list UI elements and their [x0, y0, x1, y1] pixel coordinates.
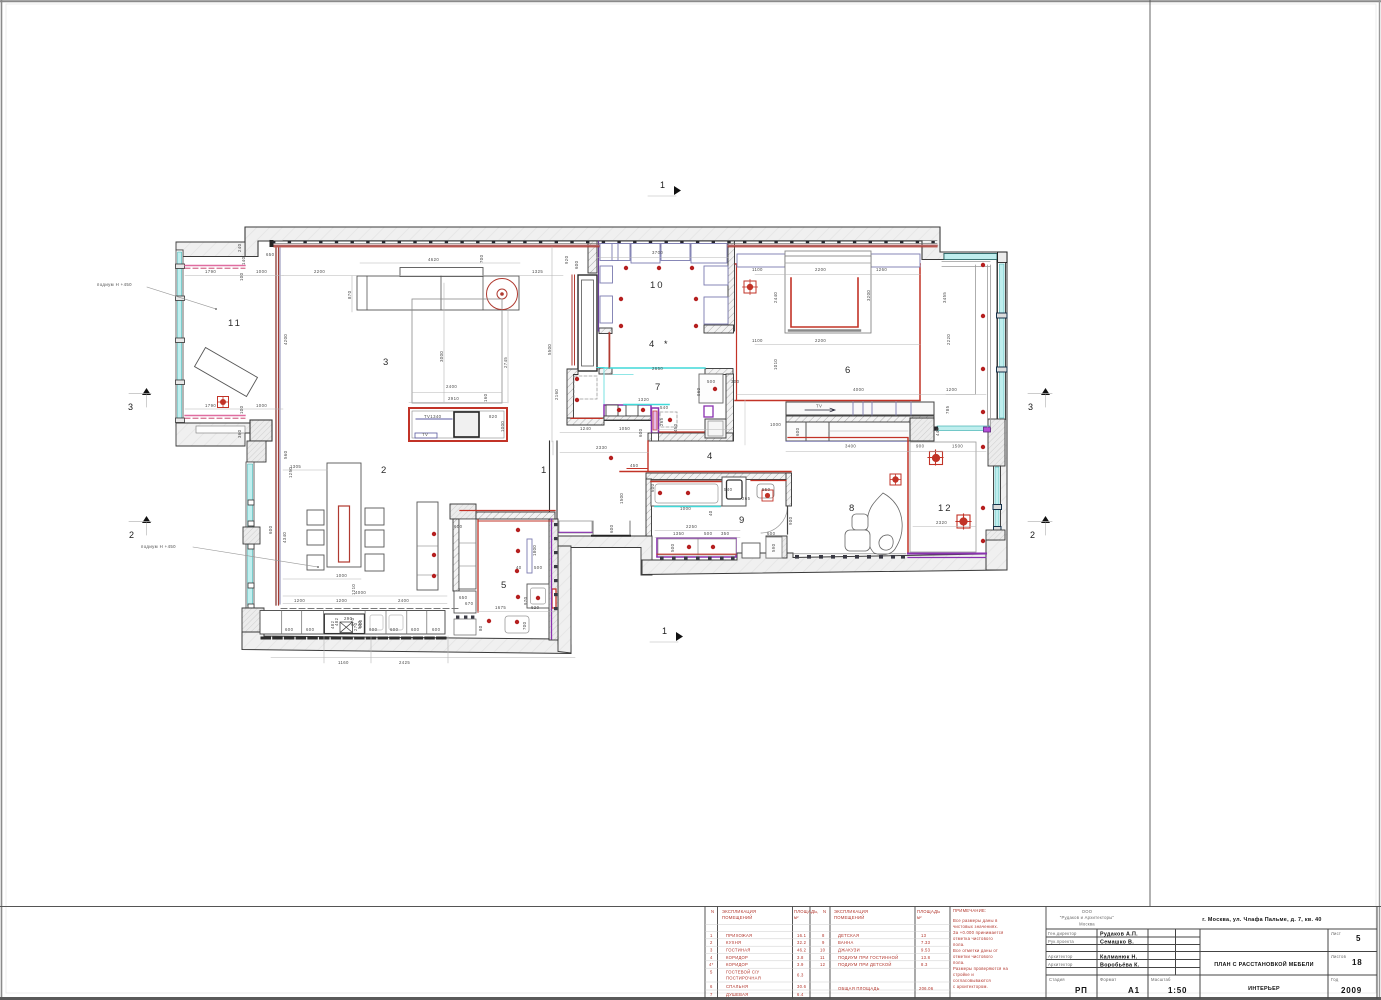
svg-text:1: 1: [662, 626, 667, 636]
svg-text:Ген.директор: Ген.директор: [1048, 931, 1077, 936]
svg-text:4620: 4620: [428, 257, 439, 262]
svg-text:ГОСТИНАЯ: ГОСТИНАЯ: [726, 948, 751, 953]
svg-text:600: 600: [609, 524, 614, 533]
svg-text:140: 140: [241, 256, 246, 265]
svg-text:3400: 3400: [845, 444, 856, 449]
svg-text:"Рудаков и Архитекторы": "Рудаков и Архитекторы": [1060, 915, 1115, 920]
svg-text:4: 4: [710, 955, 713, 960]
svg-text:TV: TV: [816, 404, 822, 409]
svg-text:Год: Год: [1331, 977, 1339, 982]
svg-text:100: 100: [239, 272, 244, 281]
svg-text:450: 450: [630, 463, 639, 468]
svg-text:Архитектор: Архитектор: [1048, 962, 1073, 967]
svg-text:РП: РП: [1075, 986, 1088, 995]
svg-text:500: 500: [357, 620, 362, 629]
svg-text:600: 600: [268, 525, 273, 534]
svg-text:600: 600: [411, 627, 420, 632]
svg-text:9.53: 9.53: [921, 948, 931, 953]
svg-text:Все размеры даны в: Все размеры даны в: [953, 918, 998, 923]
svg-text:1000: 1000: [680, 506, 691, 511]
svg-text:600: 600: [306, 627, 315, 632]
svg-text:10: 10: [650, 280, 665, 291]
svg-text:1000: 1000: [500, 421, 505, 432]
svg-text:482: 482: [334, 617, 339, 626]
svg-text:360: 360: [237, 429, 242, 438]
svg-text:4200: 4200: [283, 334, 288, 345]
svg-text:1050: 1050: [619, 426, 630, 431]
svg-text:Масштаб: Масштаб: [1151, 977, 1171, 982]
svg-text:ЭКСПЛИКАЦИЯ: ЭКСПЛИКАЦИЯ: [722, 909, 756, 914]
svg-text:6.4: 6.4: [797, 992, 804, 997]
svg-text:ПЛОЩАДЬ: ПЛОЩАДЬ: [917, 909, 940, 914]
svg-text:2910: 2910: [448, 396, 459, 401]
svg-text:6: 6: [845, 365, 852, 376]
svg-text:1500: 1500: [952, 444, 963, 449]
svg-text:Москва: Москва: [1079, 922, 1095, 927]
svg-text:1: 1: [660, 180, 665, 190]
svg-text:1350: 1350: [673, 531, 684, 536]
svg-text:1800: 1800: [532, 545, 537, 556]
svg-text:900: 900: [916, 444, 925, 449]
svg-text:ПЛОЩАДЬ,: ПЛОЩАДЬ,: [794, 909, 819, 914]
svg-text:3: 3: [383, 357, 390, 368]
svg-text:46.2: 46.2: [797, 948, 807, 953]
svg-text:12: 12: [938, 503, 953, 514]
svg-text:600: 600: [369, 627, 378, 632]
svg-text:3.9: 3.9: [797, 962, 804, 967]
svg-text:2200: 2200: [815, 267, 826, 272]
svg-text:2330: 2330: [596, 445, 607, 450]
svg-text:4: 4: [649, 339, 656, 350]
svg-text:ПРИХОЖАЯ: ПРИХОЖАЯ: [726, 933, 752, 938]
svg-text:3455: 3455: [942, 292, 947, 303]
svg-text:ГОСТЕВОЙ С/У: ГОСТЕВОЙ С/У: [726, 970, 760, 975]
svg-text:500: 500: [670, 543, 675, 552]
svg-text:590: 590: [771, 543, 776, 552]
svg-text:4000: 4000: [853, 387, 864, 392]
svg-text:Формат: Формат: [1100, 977, 1116, 982]
svg-text:600: 600: [574, 260, 579, 269]
svg-text:подиум Н +450: подиум Н +450: [97, 282, 132, 287]
svg-text:40: 40: [708, 510, 713, 516]
svg-text:900: 900: [788, 516, 793, 525]
svg-text:960: 960: [696, 387, 701, 396]
svg-text:40: 40: [516, 565, 522, 570]
svg-text:300: 300: [731, 379, 740, 384]
svg-text:1200: 1200: [336, 598, 347, 603]
svg-text:650: 650: [266, 252, 275, 257]
svg-text:16.1: 16.1: [797, 933, 807, 938]
svg-text:450: 450: [673, 423, 678, 432]
svg-text:600: 600: [795, 427, 800, 436]
svg-text:ОБЩАЯ ПЛОЩАДЬ: ОБЩАЯ ПЛОЩАДЬ: [838, 986, 880, 991]
svg-text:600: 600: [432, 627, 441, 632]
svg-text:9: 9: [739, 515, 746, 526]
svg-text:2425: 2425: [399, 660, 410, 665]
svg-text:13: 13: [921, 933, 927, 938]
svg-text:ДЕТСКАЯ: ДЕТСКАЯ: [838, 933, 859, 938]
svg-text:Листов: Листов: [1331, 954, 1347, 959]
svg-text:100: 100: [239, 405, 244, 414]
svg-text:160: 160: [483, 393, 488, 402]
svg-text:1010: 1010: [773, 359, 778, 370]
svg-text:4340: 4340: [282, 532, 287, 543]
svg-text:445: 445: [935, 427, 940, 436]
svg-text:TV1340: TV1340: [424, 414, 442, 419]
svg-text:Архитектор: Архитектор: [1048, 954, 1073, 959]
svg-text:4000: 4000: [355, 590, 366, 595]
svg-text:600: 600: [650, 483, 655, 492]
svg-text:Размеры проверяются на: Размеры проверяются на: [953, 966, 1009, 971]
svg-text:560: 560: [283, 450, 288, 459]
svg-text:270: 270: [350, 617, 355, 626]
svg-text:стройке и: стройке и: [953, 972, 974, 977]
svg-text:2400: 2400: [398, 598, 409, 603]
svg-text:920: 920: [564, 255, 569, 264]
svg-text:Стадия: Стадия: [1049, 977, 1065, 982]
svg-text:КУХНЯ: КУХНЯ: [726, 940, 741, 945]
svg-text:ЭКСПЛИКАЦИЯ: ЭКСПЛИКАЦИЯ: [834, 909, 868, 914]
svg-text:2440: 2440: [773, 292, 778, 303]
svg-text:ООО: ООО: [1082, 909, 1093, 914]
svg-text:206.06: 206.06: [919, 986, 934, 991]
svg-text:с архитектором.: с архитектором.: [953, 984, 988, 989]
svg-text:1000: 1000: [256, 403, 267, 408]
svg-text:1000: 1000: [770, 422, 781, 427]
svg-text:2200: 2200: [314, 269, 325, 274]
svg-text:670: 670: [465, 601, 474, 606]
svg-text:7: 7: [710, 992, 713, 997]
svg-text:600: 600: [285, 627, 294, 632]
svg-text:1790: 1790: [205, 403, 216, 408]
svg-text:540: 540: [724, 487, 733, 492]
svg-text:Рук.проекта: Рук.проекта: [1048, 939, 1074, 944]
svg-text:5: 5: [501, 580, 508, 591]
svg-text:11: 11: [228, 318, 242, 329]
svg-text:3: 3: [710, 948, 713, 953]
svg-text:ПРИМЕЧАНИЕ:: ПРИМЕЧАНИЕ:: [953, 908, 986, 913]
svg-text:12: 12: [820, 962, 826, 967]
svg-text:КОРИДОР: КОРИДОР: [726, 962, 748, 967]
svg-text:1100: 1100: [752, 338, 763, 343]
svg-text:8.3: 8.3: [921, 962, 928, 967]
svg-text:Семашко В.: Семашко В.: [1100, 940, 1134, 946]
svg-text:2: 2: [710, 940, 713, 945]
svg-text:265: 265: [659, 417, 664, 426]
svg-text:650: 650: [459, 595, 468, 600]
svg-text:1325: 1325: [532, 269, 543, 274]
svg-text:ДУШЕВАЯ: ДУШЕВАЯ: [726, 992, 748, 997]
svg-text:1200: 1200: [946, 387, 957, 392]
svg-text:м²: м²: [917, 915, 922, 920]
svg-text:6: 6: [710, 984, 713, 989]
svg-text:1: 1: [541, 465, 548, 476]
svg-text:А1: А1: [1128, 986, 1140, 995]
svg-text:1100: 1100: [752, 267, 763, 272]
svg-text:2745: 2745: [503, 357, 508, 368]
svg-text:700: 700: [479, 254, 484, 263]
svg-text:600: 600: [638, 428, 643, 437]
svg-text:2320: 2320: [936, 520, 947, 525]
svg-text:ПЛАН С РАССТАНОВКОЙ МЕБЕЛИ: ПЛАН С РАССТАНОВКОЙ МЕБЕЛИ: [1214, 960, 1314, 968]
svg-text:2009: 2009: [1341, 986, 1362, 995]
svg-text:540: 540: [660, 405, 669, 410]
svg-text:4: 4: [707, 451, 714, 462]
svg-text:500: 500: [704, 531, 713, 536]
svg-text:1: 1: [710, 933, 713, 938]
svg-text:3200: 3200: [866, 290, 871, 301]
svg-text:1790: 1790: [205, 269, 216, 274]
svg-text:5: 5: [1356, 934, 1361, 943]
svg-text:2400: 2400: [446, 384, 457, 389]
svg-text:10: 10: [820, 948, 826, 953]
svg-text:970: 970: [523, 596, 528, 605]
svg-text:30.6: 30.6: [797, 984, 807, 989]
svg-text:4*: 4*: [709, 962, 714, 967]
svg-text:Рудаков А.П.: Рудаков А.П.: [1100, 932, 1138, 938]
svg-text:Все отметки даны от: Все отметки даны от: [953, 948, 998, 953]
svg-text:1675: 1675: [495, 605, 506, 610]
svg-text:1210: 1210: [351, 584, 356, 595]
svg-text:5500: 5500: [547, 344, 552, 355]
svg-text:Воробьёва К.: Воробьёва К.: [1100, 962, 1140, 969]
svg-text:чистовых значениях.: чистовых значениях.: [953, 924, 998, 929]
svg-text:ПОСТИРОЧНАЯ: ПОСТИРОЧНАЯ: [726, 976, 761, 981]
svg-text:*: *: [664, 339, 668, 349]
svg-text:N: N: [711, 909, 714, 914]
svg-text:600: 600: [454, 524, 463, 529]
svg-text:18: 18: [1352, 958, 1363, 967]
svg-text:870: 870: [347, 290, 352, 299]
svg-text:1260: 1260: [876, 267, 887, 272]
svg-text:1160: 1160: [338, 660, 349, 665]
svg-text:КОРИДОР: КОРИДОР: [726, 955, 748, 960]
svg-text:3: 3: [128, 402, 133, 412]
svg-text:1320: 1320: [638, 397, 649, 402]
svg-text:пола.: пола.: [953, 942, 965, 947]
svg-text:ПОМЕЩЕНИЙ: ПОМЕЩЕНИЙ: [834, 915, 865, 920]
svg-text:ПОМЕЩЕНИЙ: ПОМЕЩЕНИЙ: [722, 915, 753, 920]
svg-text:3: 3: [1028, 402, 1033, 412]
svg-text:отметка чистового: отметка чистового: [953, 936, 993, 941]
svg-text:500: 500: [534, 565, 543, 570]
svg-text:2: 2: [1030, 530, 1035, 540]
svg-text:600: 600: [390, 627, 399, 632]
svg-text:7.33: 7.33: [921, 940, 931, 945]
svg-text:ИНТЕРЬЕР: ИНТЕРЬЕР: [1248, 986, 1280, 992]
svg-text:1000: 1000: [336, 573, 347, 578]
svg-text:ПОДИУМ ПРИ ГОСТИННОЙ: ПОДИУМ ПРИ ГОСТИННОЙ: [838, 955, 898, 960]
svg-text:2220: 2220: [946, 334, 951, 345]
svg-text:TV: TV: [422, 432, 428, 437]
svg-text:3700: 3700: [652, 250, 663, 255]
svg-text:За +0.000 принимается: За +0.000 принимается: [953, 930, 1004, 935]
svg-text:1:50: 1:50: [1168, 986, 1187, 995]
svg-text:13.8: 13.8: [921, 955, 931, 960]
svg-text:1500: 1500: [619, 493, 624, 504]
svg-text:м²: м²: [794, 915, 799, 920]
svg-text:32.2: 32.2: [797, 940, 807, 945]
svg-text:СПАЛЬНЯ: СПАЛЬНЯ: [726, 984, 748, 989]
svg-text:2650: 2650: [652, 366, 663, 371]
svg-text:ВАННА: ВАННА: [838, 940, 854, 945]
svg-text:согласовываются: согласовываются: [953, 978, 991, 983]
svg-text:1240: 1240: [580, 426, 591, 431]
svg-text:500: 500: [707, 379, 716, 384]
svg-text:2250: 2250: [686, 524, 697, 529]
svg-text:7: 7: [655, 382, 662, 393]
svg-text:6.3: 6.3: [797, 973, 804, 978]
svg-text:550: 550: [762, 487, 771, 492]
svg-text:1250: 1250: [288, 467, 293, 478]
svg-text:785: 785: [945, 405, 950, 414]
svg-text:620: 620: [531, 605, 540, 610]
svg-text:240: 240: [237, 243, 242, 252]
svg-text:2160: 2160: [554, 389, 559, 400]
svg-text:2: 2: [129, 530, 134, 540]
svg-text:8: 8: [822, 933, 825, 938]
svg-text:265: 265: [742, 496, 751, 501]
svg-text:3000: 3000: [439, 351, 444, 362]
svg-text:8: 8: [849, 503, 856, 514]
svg-text:Лист: Лист: [1331, 931, 1341, 936]
svg-text:11: 11: [820, 955, 825, 960]
svg-text:N: N: [823, 909, 826, 914]
svg-text:пола.: пола.: [953, 960, 965, 965]
svg-text:820: 820: [489, 414, 498, 419]
svg-text:700: 700: [522, 621, 527, 630]
svg-text:1200: 1200: [294, 598, 305, 603]
svg-text:80: 80: [478, 625, 483, 631]
svg-text:9: 9: [822, 940, 825, 945]
svg-text:ПОДИУМ ПРИ ДЕТСКОЙ: ПОДИУМ ПРИ ДЕТСКОЙ: [838, 962, 892, 967]
svg-text:3.8: 3.8: [797, 955, 804, 960]
svg-text:350: 350: [721, 531, 730, 536]
svg-text:2200: 2200: [815, 338, 826, 343]
svg-text:600: 600: [767, 531, 776, 536]
svg-text:подиум Н +450: подиум Н +450: [141, 544, 176, 549]
svg-text:2: 2: [381, 465, 388, 476]
svg-text:1000: 1000: [256, 269, 267, 274]
svg-text:отметки чистового: отметки чистового: [953, 954, 993, 959]
svg-text:ДЖАКУЗИ: ДЖАКУЗИ: [838, 948, 860, 953]
svg-text:Калманюк Н.: Калманюк Н.: [1100, 955, 1138, 961]
svg-text:г. Москва, ул. Члафа Пальме, д: г. Москва, ул. Члафа Пальме, д. 7, кв. 4…: [1202, 916, 1321, 923]
svg-text:5: 5: [710, 970, 713, 975]
